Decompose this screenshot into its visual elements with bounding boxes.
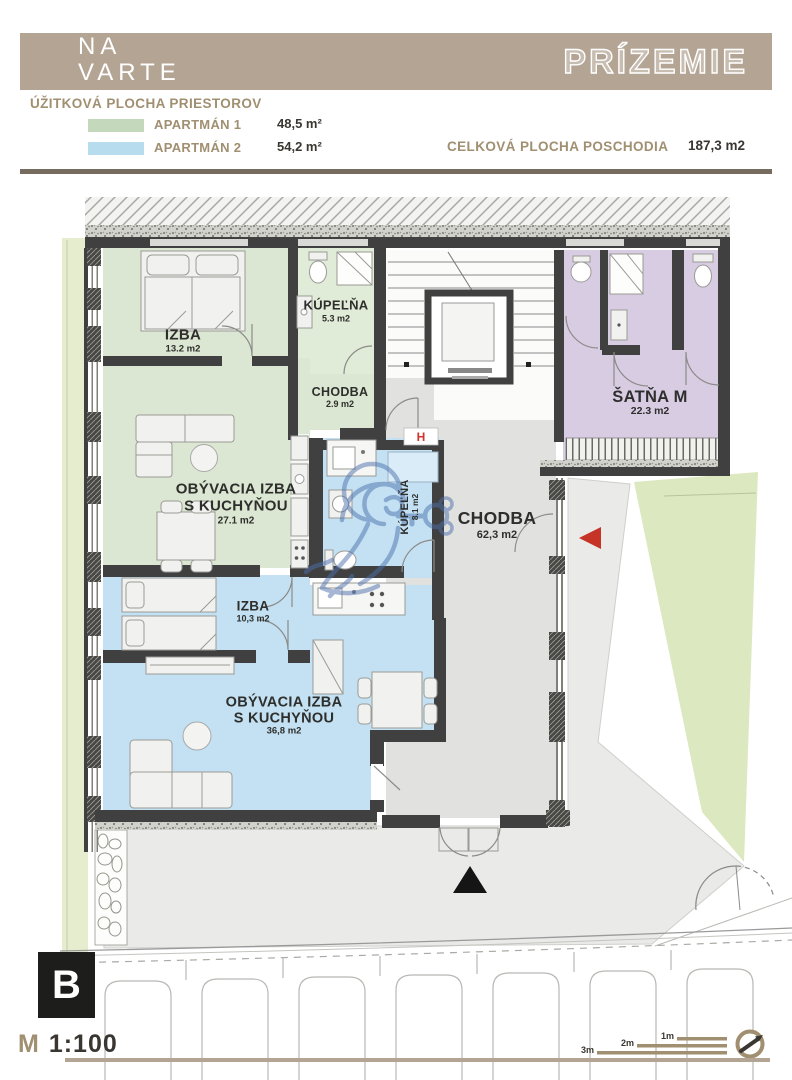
- total-area-value: 187,3 m2: [688, 138, 745, 153]
- elevator: [428, 293, 510, 381]
- compass-icon: [738, 1032, 764, 1057]
- logo-line1: NA: [78, 35, 181, 59]
- room-label-chodba-main: CHODBA 62,3 m2: [458, 509, 537, 541]
- apartment1-label: APARTMÁN 1: [154, 117, 241, 132]
- scale-bar-label-3m: 3m: [581, 1045, 594, 1055]
- apartment2-area: 54,2 m²: [277, 139, 322, 154]
- floor-plan-graphic: H: [0, 0, 792, 1080]
- room-label-obyvacia2: OBÝVACIA IZBA S KUCHYŇOU 36,8 m2: [226, 694, 343, 737]
- legend-title: ÚŽITKOVÁ PLOCHA PRIESTOROV: [30, 96, 262, 111]
- apartment1-area: 48,5 m²: [277, 116, 322, 131]
- room-label-izba2: IZBA 10,3 m2: [236, 598, 269, 623]
- apartment2-label: APARTMÁN 2: [154, 140, 241, 155]
- total-area-label: CELKOVÁ PLOCHA POSCHODIA: [447, 139, 668, 154]
- floor-plan-page: H NA VARTE PRÍZEMIE ÚŽITKOVÁ PLOCHA PRIE…: [0, 0, 792, 1080]
- footer-rule: [65, 1058, 770, 1062]
- apartment1-swatch: [88, 119, 144, 132]
- page-title: PRÍZEMIE: [563, 43, 748, 82]
- scale-prefix: M: [18, 1030, 39, 1058]
- logo: NA VARTE: [78, 35, 181, 85]
- room-label-satna: ŠATŇA M 22.3 m2: [612, 388, 687, 418]
- apartment2-swatch: [88, 142, 144, 155]
- scale-text: M1:100: [18, 1030, 118, 1059]
- logo-line2: VARTE: [78, 61, 181, 85]
- scale-value: 1:100: [49, 1030, 118, 1058]
- stone-wall: [95, 830, 127, 945]
- room-label-kupelna2: KÚPEĽŇA 8.1 m2: [399, 479, 421, 534]
- scale-bar-label-1m: 1m: [661, 1031, 674, 1041]
- room-label-obyvacia1: OBÝVACIA IZBA S KUCHYŇOU 27.1 m2: [176, 482, 297, 527]
- header-bar: NA VARTE PRÍZEMIE: [20, 33, 772, 90]
- scale-bar-label-2m: 2m: [621, 1038, 634, 1048]
- room-label-izba1: IZBA 13.2 m2: [165, 327, 201, 354]
- divider-rule: [20, 169, 772, 174]
- section-marker: B: [38, 952, 95, 1018]
- room-label-kupelna1: KÚPEĽŇA 5.3 m2: [304, 299, 369, 324]
- hydrant-label: H: [417, 430, 426, 444]
- room-label-chodba1: CHODBA 2.9 m2: [312, 385, 369, 409]
